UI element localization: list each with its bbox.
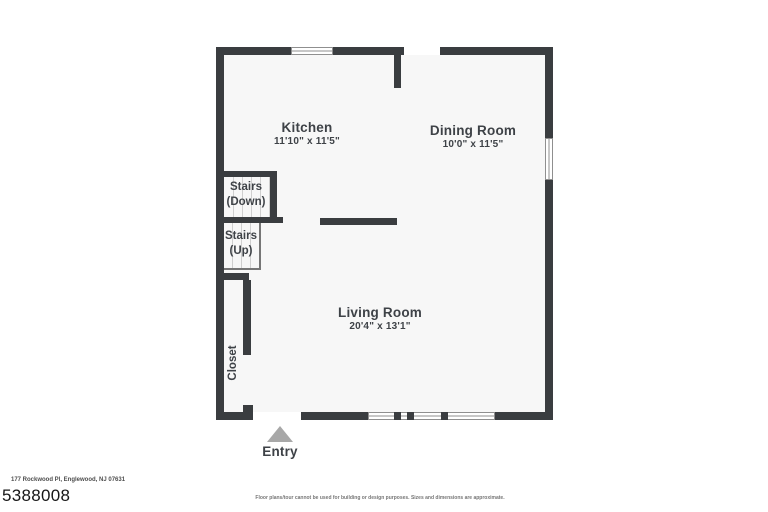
closet-right-wall [243,280,251,355]
listing-id: 5388008 [2,486,70,506]
entry-arrow-icon [267,426,293,442]
closet-label: Closet [227,345,239,380]
dining-window-icon [545,138,553,180]
kitchen-living-half-wall [320,218,397,225]
floorplan-disclaimer: Floor plans/tour cannot be used for buil… [255,495,504,501]
closet-top-wall [216,273,249,280]
wall-top-opening [404,47,440,55]
wall-bottom-mid-segment [301,412,368,420]
wall-bottom-left-segment [216,412,253,420]
kitchen-dining-partition [394,55,401,88]
entry-label: Entry [262,444,298,459]
floor-area [216,47,553,420]
stairs-down-label-line2: (Down) [227,196,266,208]
dining-room-label: Dining Room [430,123,516,138]
floorplan-canvas: Kitchen 11'10" x 11'5" Dining Room 10'0"… [0,0,768,512]
wall-right-upper-segment [545,47,553,138]
wall-right-lower-segment [545,180,553,420]
living-room-windows-icon [368,412,495,420]
stairs-up-label-line2: (Up) [230,245,253,257]
entry-door-opening [253,412,301,420]
closet-wall-stub [243,405,253,413]
wall-left [216,47,224,420]
wall-bottom-right-segment [495,412,553,420]
wall-top-mid-segment [333,47,404,55]
living-room-dimensions: 20'4" x 13'1" [349,321,410,332]
window-mullion [441,412,448,420]
window-mullion [394,412,401,420]
wall-top-right-segment [440,47,553,55]
stairs-up-label-line1: Stairs [225,230,257,242]
kitchen-label: Kitchen [282,120,333,135]
wall-top-left-segment [216,47,291,55]
stairs-down-label-line1: Stairs [230,181,262,193]
window-mullion [407,412,414,420]
stairs-down-right-wall [270,171,277,223]
dining-room-dimensions: 10'0" x 11'5" [443,139,504,150]
kitchen-window-icon [291,47,333,55]
kitchen-dimensions: 11'10" x 11'5" [274,136,340,147]
listing-address: 177 Rockwood Pl, Englewood, NJ 07631 [11,477,125,483]
living-room-label: Living Room [338,305,422,320]
